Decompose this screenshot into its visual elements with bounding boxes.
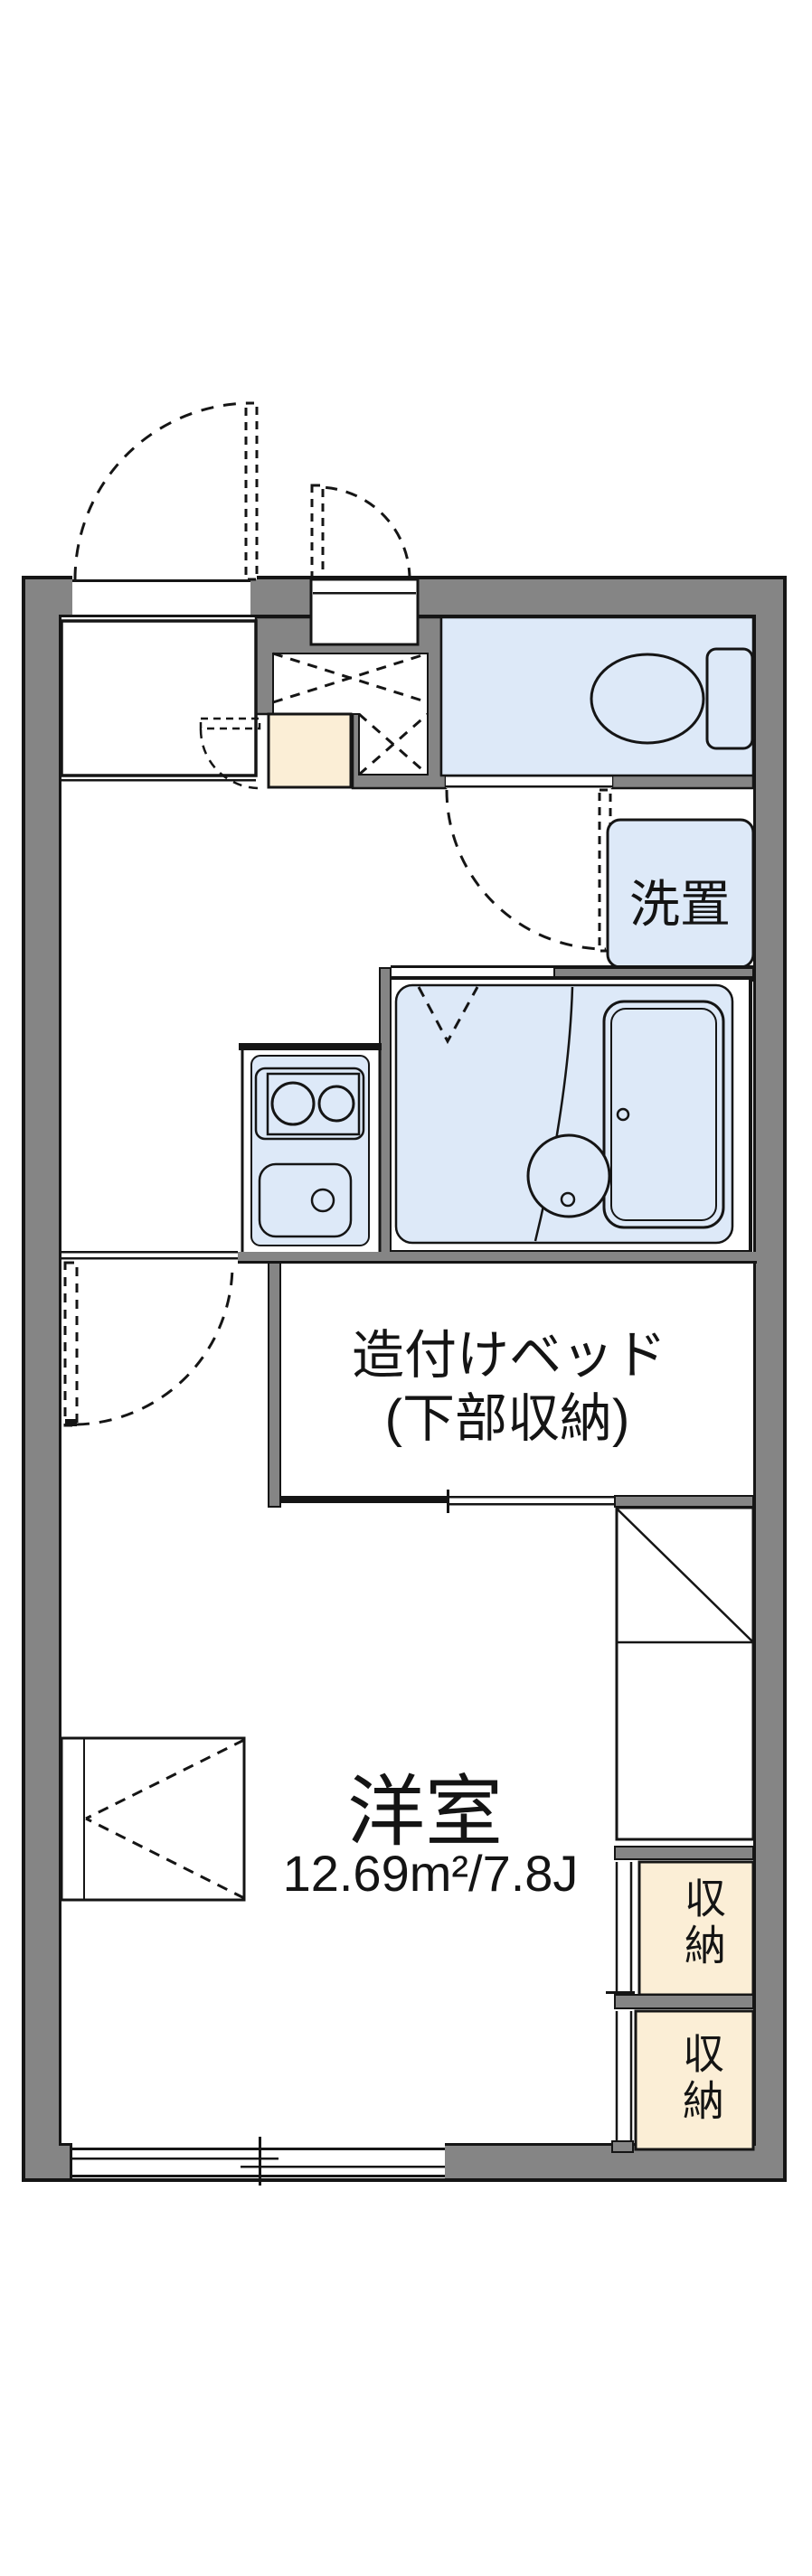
bed-top-wall-line — [238, 1261, 757, 1264]
entrance-door-leaf — [246, 403, 257, 579]
entrance-sill-line-2 — [72, 615, 250, 617]
bathtub-drain-dot — [618, 1109, 628, 1120]
washer-place-label: 洗置 — [629, 864, 731, 937]
floor-plan-drawing — [0, 0, 812, 2576]
alcove-door-leaf — [312, 485, 323, 579]
kitchen-counter-edge — [239, 1043, 382, 1050]
alcove-floor — [311, 579, 418, 644]
window-left-jamb — [70, 2143, 72, 2178]
shoe-cabinet — [269, 714, 351, 787]
bed-left-wall — [269, 1263, 280, 1507]
kitchen-bathroom-wall — [380, 968, 391, 1263]
room-door-leaf — [65, 1263, 77, 1425]
closet-top-wall — [615, 1496, 753, 1507]
window-center-tick — [259, 2137, 261, 2186]
toilet-bowl-icon — [591, 654, 703, 743]
entrance-step-line — [61, 779, 256, 782]
utility-closet — [615, 1508, 753, 1859]
window-pane-right — [241, 2166, 445, 2168]
utility-closet-box — [617, 1508, 753, 1839]
toilet-doorway-line-2 — [446, 785, 612, 788]
kitchen — [239, 1043, 382, 1254]
room-door-stop — [65, 1419, 77, 1426]
kitchen-sink — [260, 1164, 351, 1236]
entrance-opening — [72, 573, 250, 624]
entrance-door-arc — [75, 403, 251, 579]
storage-lower-label: 収納 — [671, 2032, 731, 2126]
toilet-tank-icon — [707, 649, 752, 748]
utility-closet-bottom-wall — [615, 1847, 753, 1859]
storage-divider-tick — [606, 1991, 635, 1994]
bath-drain-dot — [562, 1193, 574, 1206]
storage-upper-label: 収納 — [673, 1876, 732, 1970]
porch-alcove — [311, 485, 418, 644]
burner-right-icon — [319, 1086, 354, 1121]
entrance-hall — [61, 621, 260, 788]
window-pane-left — [72, 2158, 279, 2160]
bed-bottom-edge — [280, 1496, 449, 1503]
bottom-wall-notch — [612, 2141, 633, 2152]
bottom-window — [70, 2137, 445, 2186]
room-area-label: 12.69m²/7.8J — [283, 1844, 579, 1903]
bed-bottom-track-1 — [449, 1496, 615, 1499]
sink-drain-icon — [312, 1189, 334, 1211]
hall-boundary-line-2 — [61, 1257, 238, 1260]
bathroom — [389, 978, 751, 1252]
storage-divider-wall — [615, 1995, 753, 2008]
alcove-door-arc — [317, 487, 410, 579]
built-in-bed-label-line2: (下部収納) — [385, 1376, 630, 1452]
toilet-doorway-line-1 — [446, 775, 612, 777]
bed-bottom-tick — [447, 1490, 449, 1513]
alcove-step-line — [313, 592, 416, 595]
entrance-hall-floor — [61, 621, 256, 776]
counter-fixture — [61, 1738, 244, 1900]
entrance-door — [75, 403, 257, 579]
burner-left-icon — [272, 1083, 314, 1124]
hall-boundary-line-1 — [61, 1251, 238, 1254]
entrance-sill-line-1 — [72, 579, 250, 582]
floor-plan-canvas: 洗置 造付けベッド (下部収納) 洋室 12.69m²/7.8J 収納 収納 — [0, 0, 812, 2576]
bed-bottom-track-2 — [449, 1503, 615, 1506]
